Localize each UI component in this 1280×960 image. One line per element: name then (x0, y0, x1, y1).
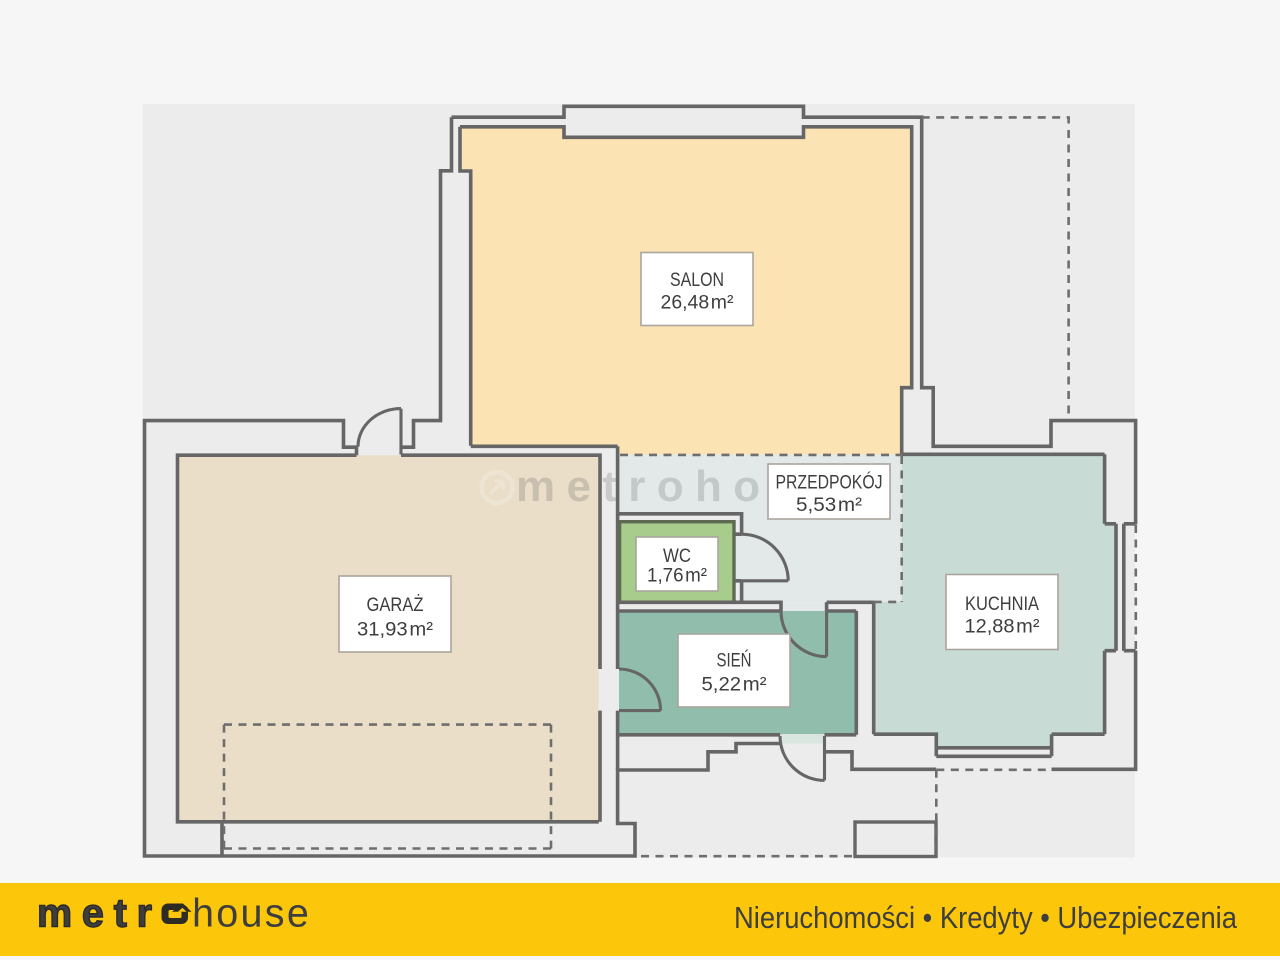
svg-text:metr: metr (37, 892, 162, 936)
svg-text:house: house (192, 892, 311, 936)
svg-text:31,93 m²: 31,93 m² (357, 619, 434, 641)
svg-text:26,48 m²: 26,48 m² (661, 292, 734, 314)
svg-text:5,22 m²: 5,22 m² (702, 674, 768, 696)
svg-text:SALON: SALON (670, 269, 724, 291)
svg-text:1,76 m²: 1,76 m² (647, 565, 707, 587)
svg-text:KUCHNIA: KUCHNIA (965, 593, 1039, 615)
svg-text:GARAŻ: GARAŻ (367, 593, 424, 616)
svg-text:SIEŃ: SIEŃ (717, 649, 752, 672)
svg-text:5,53 m²: 5,53 m² (796, 494, 863, 516)
svg-text:12,88 m²: 12,88 m² (965, 616, 1041, 638)
svg-text:Nieruchomości • Kredyty • Ubez: Nieruchomości • Kredyty • Ubezpieczenia (734, 901, 1237, 935)
svg-text:PRZEDPOKÓJ: PRZEDPOKÓJ (776, 471, 883, 494)
